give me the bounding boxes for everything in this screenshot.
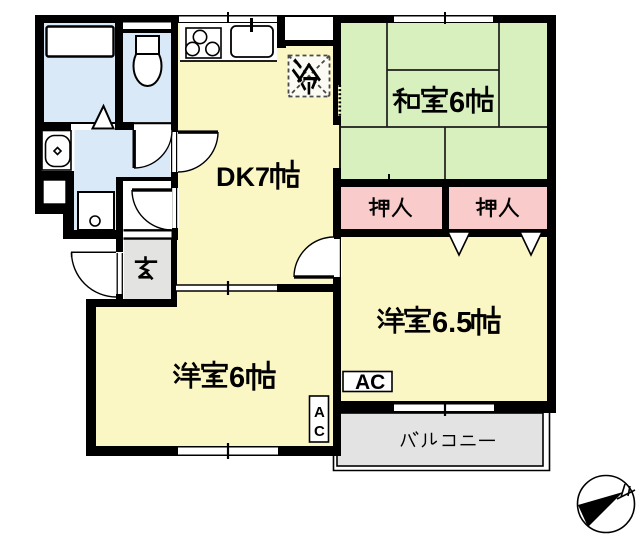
svg-text:6.5: 6.5 [432, 307, 472, 339]
svg-text:6: 6 [229, 362, 245, 394]
svg-text:C: C [314, 423, 325, 440]
svg-text:AC: AC [355, 371, 385, 394]
svg-text:DK7: DK7 [216, 162, 270, 192]
svg-text:A: A [314, 404, 325, 421]
svg-text:6: 6 [449, 87, 465, 119]
